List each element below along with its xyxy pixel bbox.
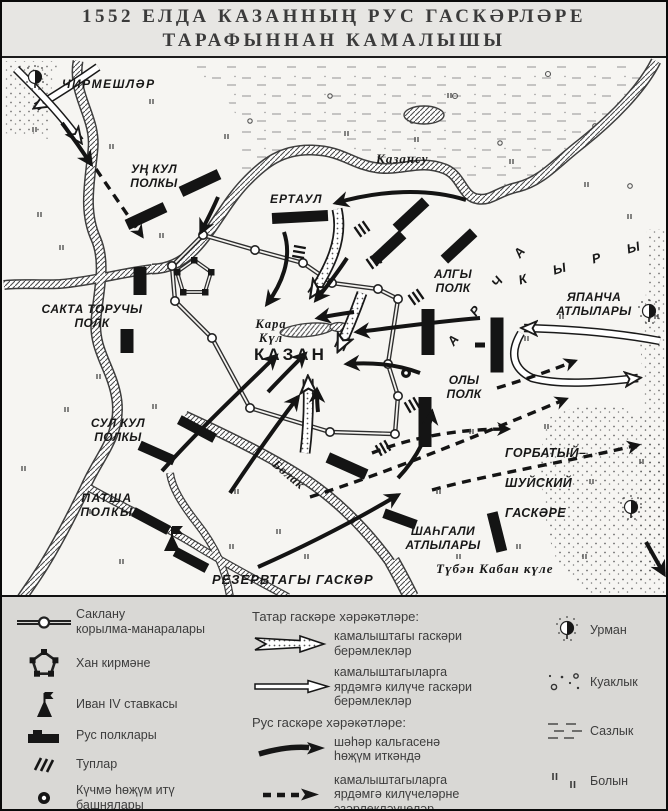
legend-movements-column: Татар гаскәре хәрәкәтләре: камалыштагы г… — [250, 607, 544, 805]
label-patsha-polky: ПАТША ПОЛКЫ — [68, 492, 146, 519]
legend-item-label: камалыштагы гаскәри берәмлекләр — [334, 629, 462, 658]
swamp-icon — [544, 719, 590, 743]
stippled-arrow-icon — [250, 633, 334, 655]
tatar-movements-header: Татар гаскәре хәрәкәтләре: — [252, 609, 544, 624]
solid-arrow-icon — [250, 740, 334, 759]
legend-item-label: шәһәр кальгасенә һөҗүм иткәндә — [334, 735, 440, 764]
legend-item-siege-tower: Күчмә һөҗүм итү башнялары — [12, 783, 250, 811]
label-sakta-toruchy-polk: САКТА ТОРУЧЫ ПОЛК — [30, 303, 154, 330]
legend-item-tatar-sortie: камалыштагы гаскәри берәмлекләр — [250, 629, 544, 658]
legend-item-label: Болын — [590, 774, 628, 789]
label-kazansu-river: Казансу — [376, 152, 429, 166]
label-kazan-city: КАЗАН — [254, 346, 327, 364]
siege-map-sheet: 1552 ЕЛДА КАЗАННЫҢ РУС ГАСКӘРЛӘРЕ ТАРАФЫ… — [0, 0, 668, 811]
ivan-hq-flag-icon — [12, 689, 76, 719]
legend-item-tatar-help: камалыштагыларга ярдәмгә килүче гаскәри … — [250, 665, 544, 709]
legend-item-label: Куаклык — [590, 675, 638, 690]
rus-movements-header: Рус гаскәре хәрәкәтләре: — [252, 715, 544, 730]
label-un-kul-polky: УҢ КУЛ ПОЛКЫ — [122, 163, 186, 190]
legend-item-label: Саклану корылма-манаралары — [76, 607, 205, 636]
map-title: 1552 ЕЛДА КАЗАННЫҢ РУС ГАСКӘРЛӘРЕ ТАРАФЫ… — [2, 2, 666, 58]
wall-towers-icon — [12, 614, 76, 630]
map-title-line1: 1552 ЕЛДА КАЗАННЫҢ РУС ГАСКӘРЛӘРЕ — [82, 5, 586, 29]
cannons-icon — [12, 754, 76, 774]
legend-item-forest: Урман — [544, 613, 662, 647]
legend-item-cannons: Туплар — [12, 754, 250, 774]
legend-item-label: Күчмә һөҗүм итү башнялары — [76, 783, 175, 811]
label-japancha-atlylary: ЯПАНЧА АТЛЫЛАРЫ — [548, 291, 640, 318]
legend-item-shrubs: Куаклык — [544, 669, 662, 695]
khan-fortress-icon — [12, 645, 76, 681]
label-algy-polk: АЛГЫ ПОЛК — [428, 268, 478, 295]
legend-item-wall: Саклану корылма-манаралары — [12, 607, 250, 636]
label-tuben-kaban-kule: Түбән Кабан күле — [436, 562, 553, 576]
siege-tower-icon — [12, 788, 76, 808]
legend-symbols-column: Саклану корылма-манаралары Хан кирмәне И… — [12, 607, 250, 805]
legend-item-label: Сазлык — [590, 724, 633, 739]
label-ertaul: ЕРТАУЛ — [270, 193, 323, 207]
meadow-icon — [544, 769, 590, 793]
legend: Саклану корылма-манаралары Хан кирмәне И… — [2, 597, 666, 809]
legend-item-label: Урман — [590, 623, 627, 638]
legend-item-label: Туплар — [76, 757, 117, 772]
legend-item-ivan-hq: Иван IV ставкасы — [12, 689, 250, 719]
label-oly-polk: ОЛЫ ПОЛК — [439, 374, 489, 401]
legend-item-rus-assault: шәһәр кальгасенә һөҗүм иткәндә — [250, 735, 544, 764]
legend-terrain-column: Урман Куаклык Сазлык Болын — [544, 607, 662, 805]
siege-map: ЧИРМЕШЛӘР УҢ КУЛ ПОЛКЫ Казансу ЕРТАУЛ АЛ… — [2, 58, 666, 597]
legend-item-meadow: Болын — [544, 769, 662, 793]
label-kara-kul-lake: Кара Күл — [246, 318, 296, 345]
label-rezervtagy-gasker: РЕЗЕРВТАГЫ ГАСКӘР — [212, 573, 374, 587]
legend-item-label: Рус полклары — [76, 728, 157, 743]
dashed-arrow-icon — [250, 786, 334, 802]
map-title-line2: ТАРАФЫННАН КАМАЛЫШЫ — [163, 29, 506, 53]
shrubs-icon — [544, 669, 590, 695]
label-chirmeshler: ЧИРМЕШЛӘР — [62, 78, 156, 92]
label-sul-kul-polky: СУЛ КУЛ ПОЛКЫ — [80, 417, 156, 444]
legend-item-khan-fortress: Хан кирмәне — [12, 645, 250, 681]
rus-regiment-bars — [121, 169, 508, 573]
lake-top — [404, 106, 444, 124]
legend-item-label: Хан кирмәне — [76, 656, 150, 671]
open-arrow-icon — [250, 678, 334, 695]
legend-item-label: камалыштагыларга ярдәмгә килүчеләрне эзә… — [334, 773, 459, 811]
label-shahgali-atlylary: ШАҺГАЛИ АТЛЫЛАРЫ — [400, 525, 486, 552]
legend-item-swamp: Сазлык — [544, 719, 662, 743]
legend-item-rus-regiment: Рус полклары — [12, 727, 250, 744]
rus-regiment-icon — [12, 727, 76, 744]
forest-icon — [544, 613, 590, 647]
legend-item-label: камалыштагыларга ярдәмгә килүче гаскәри … — [334, 665, 472, 709]
label-gorbatyj-shujskij-gaskere: ГОРБАТЫЙ– ШУЙСКИЙ ГАСКӘРЕ — [505, 438, 605, 528]
legend-item-label: Иван IV ставкасы — [76, 697, 177, 712]
legend-item-rus-pursuit: камалыштагыларга ярдәмгә килүчеләрне эзә… — [250, 773, 544, 811]
